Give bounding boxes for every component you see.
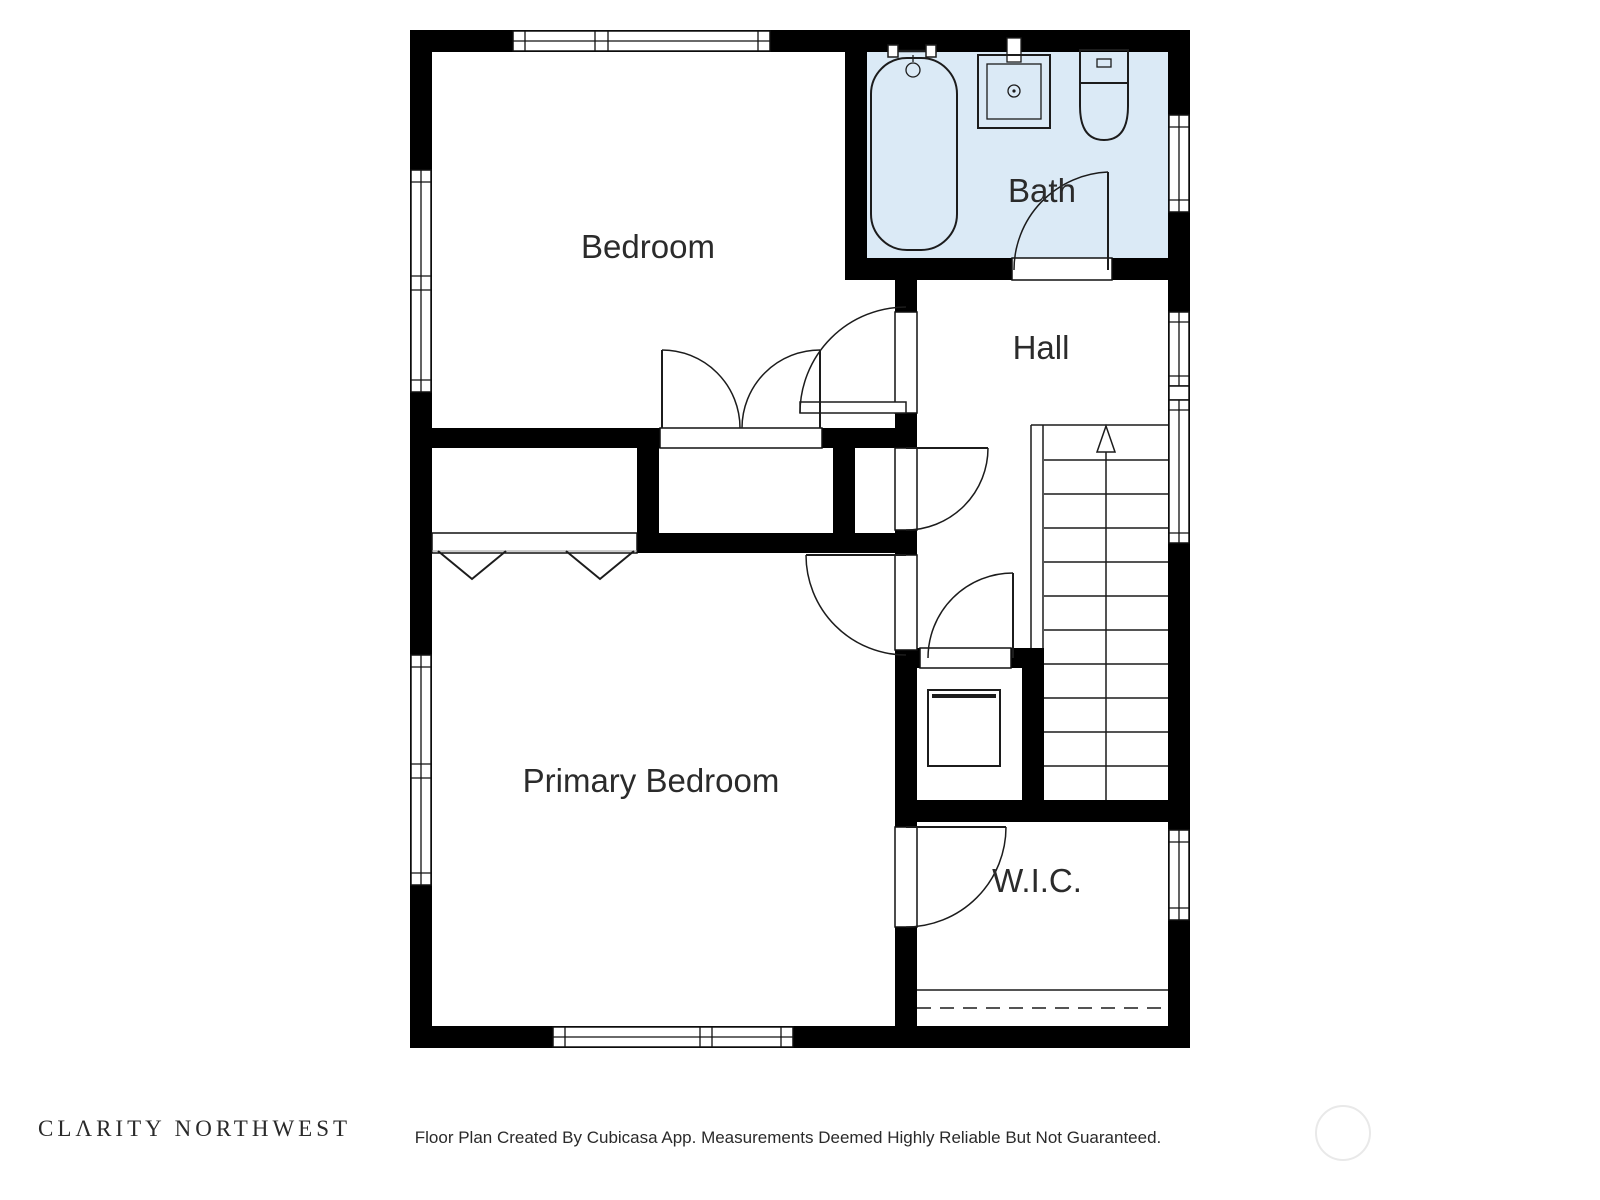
opening-linen-closet-door [895,448,917,530]
door-swing-arc [742,350,820,428]
wall-bath-bottom [845,258,1168,280]
room-label-bedroom: Bedroom [581,228,715,265]
room-label-wic: W.I.C. [992,862,1082,899]
door-bedroom [800,307,906,413]
window-bottom-primary [553,1027,793,1047]
room-label-bath: Bath [1008,172,1076,209]
wall-closet-bottom [637,533,895,553]
wall-closet-divider-2 [833,448,855,533]
wall-closet-divider-1 [637,448,659,533]
wall-bedroom-bath-divider [845,52,867,258]
wall-wic-top [895,800,1190,822]
window-right-hall-lower [1169,400,1189,543]
opening-bath-door [1012,258,1112,280]
door-swing-arc [800,307,906,413]
staircase [1031,425,1168,800]
room-label-hall: Hall [1013,329,1070,366]
opening-bifold-closet [432,533,637,553]
door-wic [906,827,1006,927]
door-bedroom-closet-double [662,350,820,428]
door-swing-arc [806,555,906,655]
window-left-bedroom [411,170,431,392]
door-linen-closet [906,448,988,530]
door-primary-bedroom [806,555,906,655]
opening-wic-door [895,827,917,927]
window-left-primary [411,655,431,885]
door-leaf [800,402,906,413]
bifold-leaf [438,551,506,579]
door-utility-closet [928,573,1013,658]
disclaimer-text: Floor Plan Created By Cubicasa App. Meas… [0,1128,1576,1148]
window-right-bath [1169,115,1189,212]
door-swing-arc [906,827,1006,927]
wic-shelf-lines [917,990,1168,1008]
opening-primary-door [895,555,917,650]
stairs-up-arrow-icon [1097,426,1115,452]
bifold-leaf [566,551,634,579]
wall-utility-top-right [1011,648,1044,668]
floor-plan-canvas: Bedroom Bath Hall Primary Bedroom W.I.C. [0,0,1600,1200]
wall-utility-right [1022,668,1044,800]
wall-utility-top-left [895,648,922,668]
door-swing-arc [906,448,988,530]
window-right-hall-upper [1169,312,1189,386]
wall-bottom [410,1026,1190,1048]
bifold-closet-doors [432,551,637,579]
window-right-wic [1169,830,1189,920]
opening-bedroom-door [895,312,917,413]
opening-bedroom-closet [660,428,822,448]
water-heater-icon [928,690,1000,766]
door-openings [432,258,1112,927]
door-swing-arc [928,573,1013,658]
door-swing-arc [662,350,740,428]
room-label-primary-bedroom: Primary Bedroom [523,762,780,799]
floor-plan-page: Bedroom Bath Hall Primary Bedroom W.I.C.… [0,0,1600,1200]
opening-utility-door [920,648,1011,668]
window-top-bedroom [513,31,770,51]
window-mullion [1169,386,1189,400]
